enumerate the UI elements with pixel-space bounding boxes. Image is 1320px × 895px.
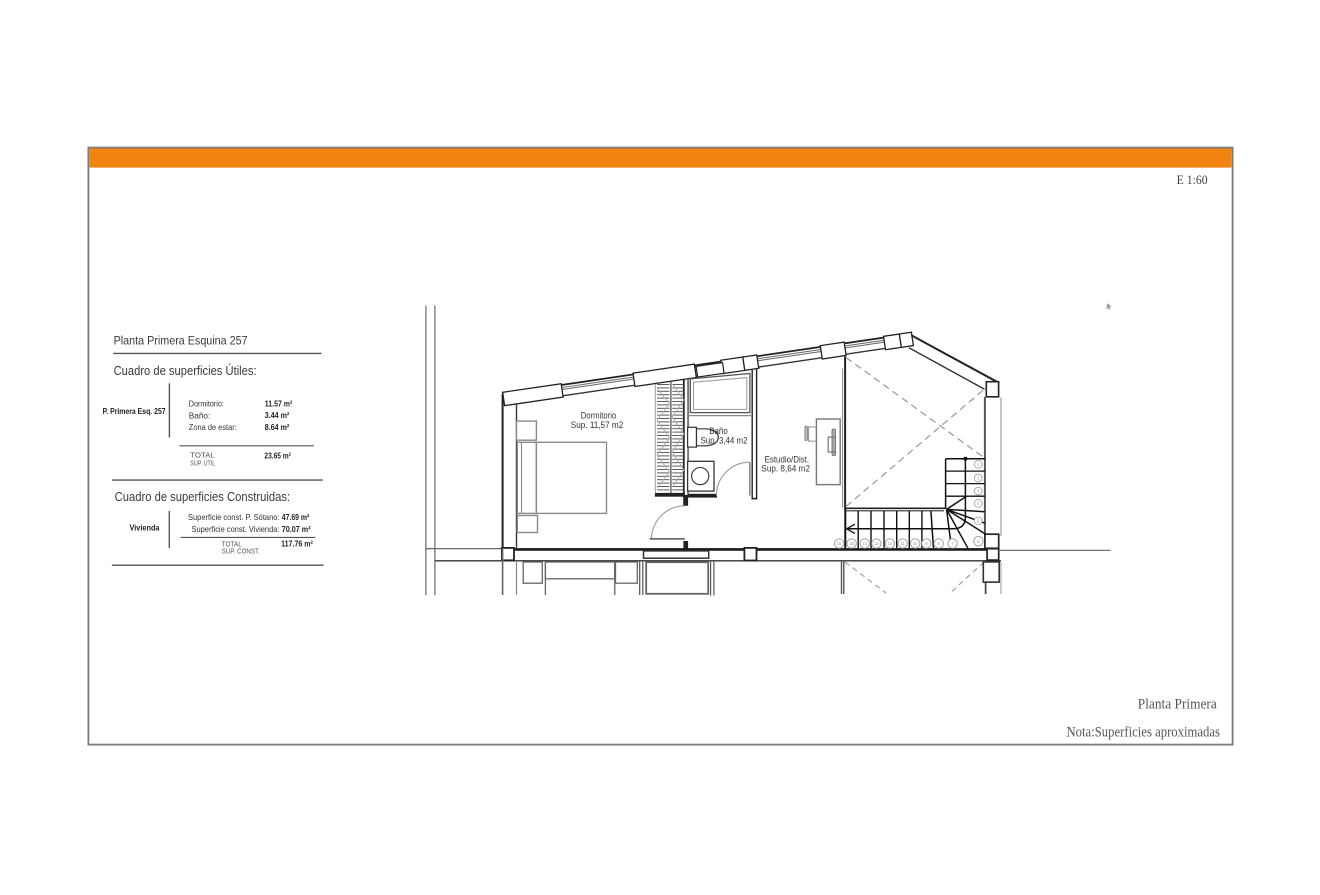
svg-text:Superficie const. Vivienda:: Superficie const. Vivienda: <box>192 525 280 534</box>
svg-text:Superficie const. P. Sótano:: Superficie const. P. Sótano: <box>188 513 280 522</box>
svg-text:11.57 m²: 11.57 m² <box>265 399 293 408</box>
svg-text:TOTAL: TOTAL <box>222 541 242 548</box>
svg-text:SUP. CONST.: SUP. CONST. <box>222 549 260 556</box>
svg-text:Planta Primera: Planta Primera <box>1138 697 1218 713</box>
svg-text:8.64 m²: 8.64 m² <box>265 423 290 432</box>
svg-text:P. Primera Esq. 257: P. Primera Esq. 257 <box>103 407 166 416</box>
svg-text:11: 11 <box>900 541 905 546</box>
svg-text:Sup. 3,44 m2: Sup. 3,44 m2 <box>701 435 748 445</box>
svg-text:Planta Primera Esquina 257: Planta Primera Esquina 257 <box>114 334 248 348</box>
svg-text:3.44 m²: 3.44 m² <box>265 411 290 420</box>
svg-text:14: 14 <box>862 541 867 546</box>
svg-text:47.69 m²: 47.69 m² <box>282 513 310 522</box>
svg-text:Cuadro de superficies Construi: Cuadro de superficies Construidas: <box>115 489 291 504</box>
svg-text:Baño:: Baño: <box>189 411 211 420</box>
svg-text:70.07 m²: 70.07 m² <box>282 525 311 534</box>
svg-text:Dormitorio:: Dormitorio: <box>189 400 224 409</box>
svg-text:13: 13 <box>874 541 879 546</box>
svg-text:Nota:Superficies aproximadas: Nota:Superficies aproximadas <box>1067 725 1221 741</box>
svg-text:Sup. 8,64 m2: Sup. 8,64 m2 <box>761 464 810 474</box>
svg-text:TOTAL: TOTAL <box>190 452 215 459</box>
svg-text:12: 12 <box>888 541 893 546</box>
svg-text:SUP. ÚTIL: SUP. ÚTIL <box>190 459 215 468</box>
svg-text:16: 16 <box>837 541 842 546</box>
svg-text:E 1:60: E 1:60 <box>1177 173 1208 187</box>
svg-text:10: 10 <box>913 541 918 546</box>
svg-text:Sup. 11,57 m2: Sup. 11,57 m2 <box>571 420 624 430</box>
svg-text:Vivienda: Vivienda <box>130 523 161 532</box>
svg-text:Baño: Baño <box>709 426 728 436</box>
svg-text:Cuadro de superficies Útiles:: Cuadro de superficies Útiles: <box>114 363 257 378</box>
svg-text:Zona de estar:: Zona de estar: <box>189 423 237 432</box>
svg-text:15: 15 <box>849 541 854 546</box>
svg-text:23.65 m²: 23.65 m² <box>264 452 291 461</box>
svg-text:117.76 m²: 117.76 m² <box>281 539 313 548</box>
